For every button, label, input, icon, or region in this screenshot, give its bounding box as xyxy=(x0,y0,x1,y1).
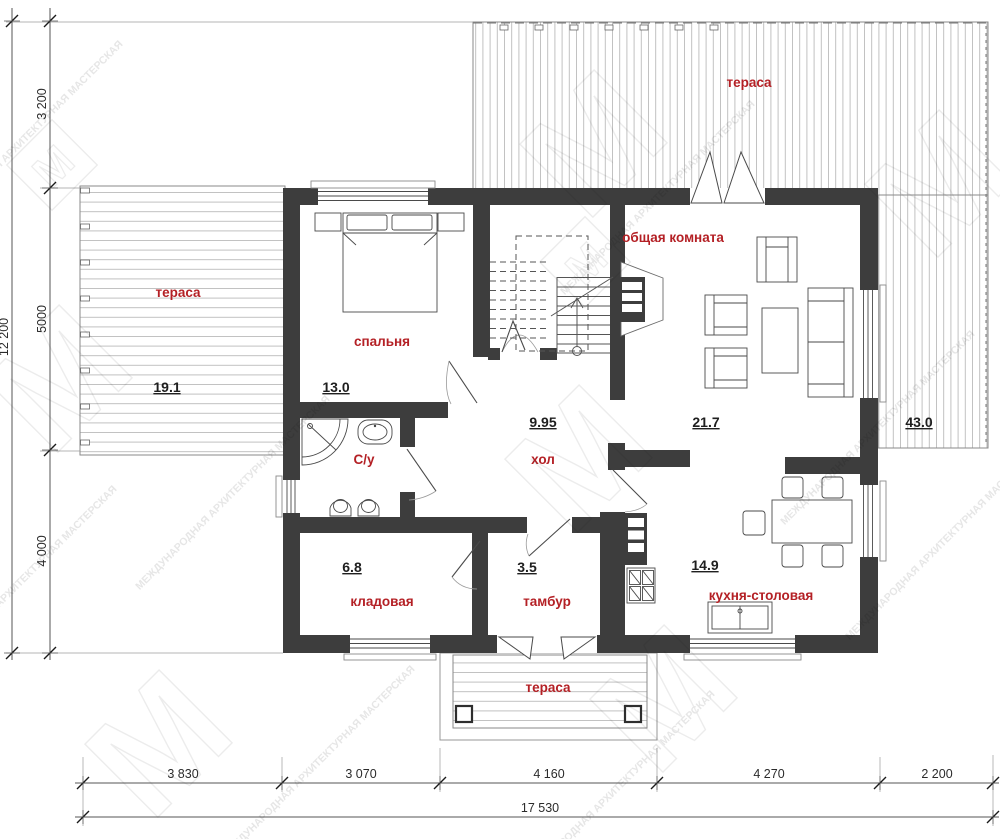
storage-area: 6.8 xyxy=(342,559,362,575)
terrace-top-label: тераса xyxy=(726,75,772,90)
dim-bottom-1: 3 070 xyxy=(345,767,376,781)
porch-post xyxy=(456,706,472,722)
storage-window xyxy=(344,635,436,660)
sink xyxy=(358,420,392,444)
armchair xyxy=(757,237,797,282)
chair xyxy=(822,545,843,567)
watermark-text: МЕЖДУНАРОДНАЯ АРХИТЕКТУРНАЯ МАСТЕРСКАЯ xyxy=(0,483,119,682)
watermark-letter: М xyxy=(55,640,262,839)
bedroom-area: 13.0 xyxy=(322,379,349,395)
bathroom-window xyxy=(276,476,300,517)
floor-plan-page: тераса тераса 19.1 43.0 тераса спальня 1… xyxy=(0,0,1000,839)
chair xyxy=(782,545,803,567)
bathroom-label: С/у xyxy=(353,452,375,467)
living-label: общая комната xyxy=(622,230,724,245)
coffee-table xyxy=(762,308,798,373)
storage-label: кладовая xyxy=(350,594,413,609)
chair xyxy=(743,511,765,535)
kitchen-area: 14.9 xyxy=(691,557,718,573)
chair xyxy=(782,477,803,498)
nightstand xyxy=(438,213,464,231)
terrace-right-area: 43.0 xyxy=(905,414,932,430)
dim-bottom-2: 4 160 xyxy=(533,767,564,781)
armchair xyxy=(705,348,747,388)
dim-bottom-3: 4 270 xyxy=(753,767,784,781)
bedroom-window xyxy=(311,181,435,205)
double-bed xyxy=(343,213,437,312)
vestibule-area: 3.5 xyxy=(517,559,537,575)
sofa xyxy=(808,288,853,397)
living-area: 21.7 xyxy=(692,414,719,430)
kitchen-side-window xyxy=(860,481,886,561)
nightstand xyxy=(315,213,341,231)
kitchen-label: кухня-столовая xyxy=(709,588,813,603)
dim-bottom-4: 2 200 xyxy=(921,767,952,781)
dim-bottom-total: 17 530 xyxy=(521,801,559,815)
vestibule-label: тамбур xyxy=(523,594,571,609)
kitchen-sink-counter xyxy=(708,602,772,633)
bedroom-label: спальня xyxy=(354,334,410,349)
armchair xyxy=(705,295,747,335)
floor-plan-canvas: тераса тераса 19.1 43.0 тераса спальня 1… xyxy=(0,0,1000,839)
terrace-left-label: тераса xyxy=(155,285,201,300)
